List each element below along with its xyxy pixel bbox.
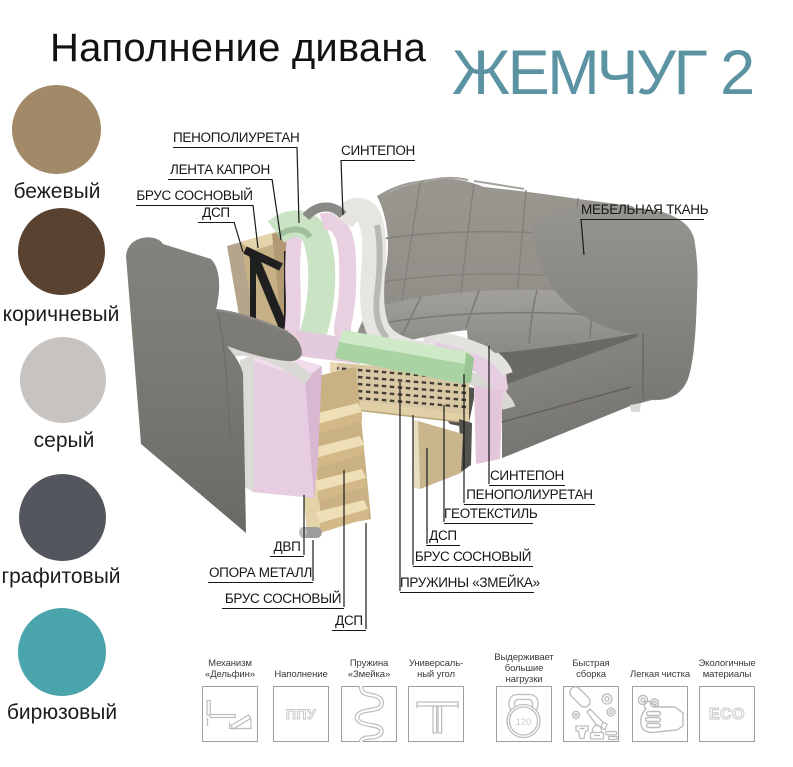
svg-text:120: 120 bbox=[516, 717, 532, 728]
svg-text:ECO: ECO bbox=[709, 706, 745, 723]
svg-text:ППУ: ППУ bbox=[286, 706, 316, 722]
